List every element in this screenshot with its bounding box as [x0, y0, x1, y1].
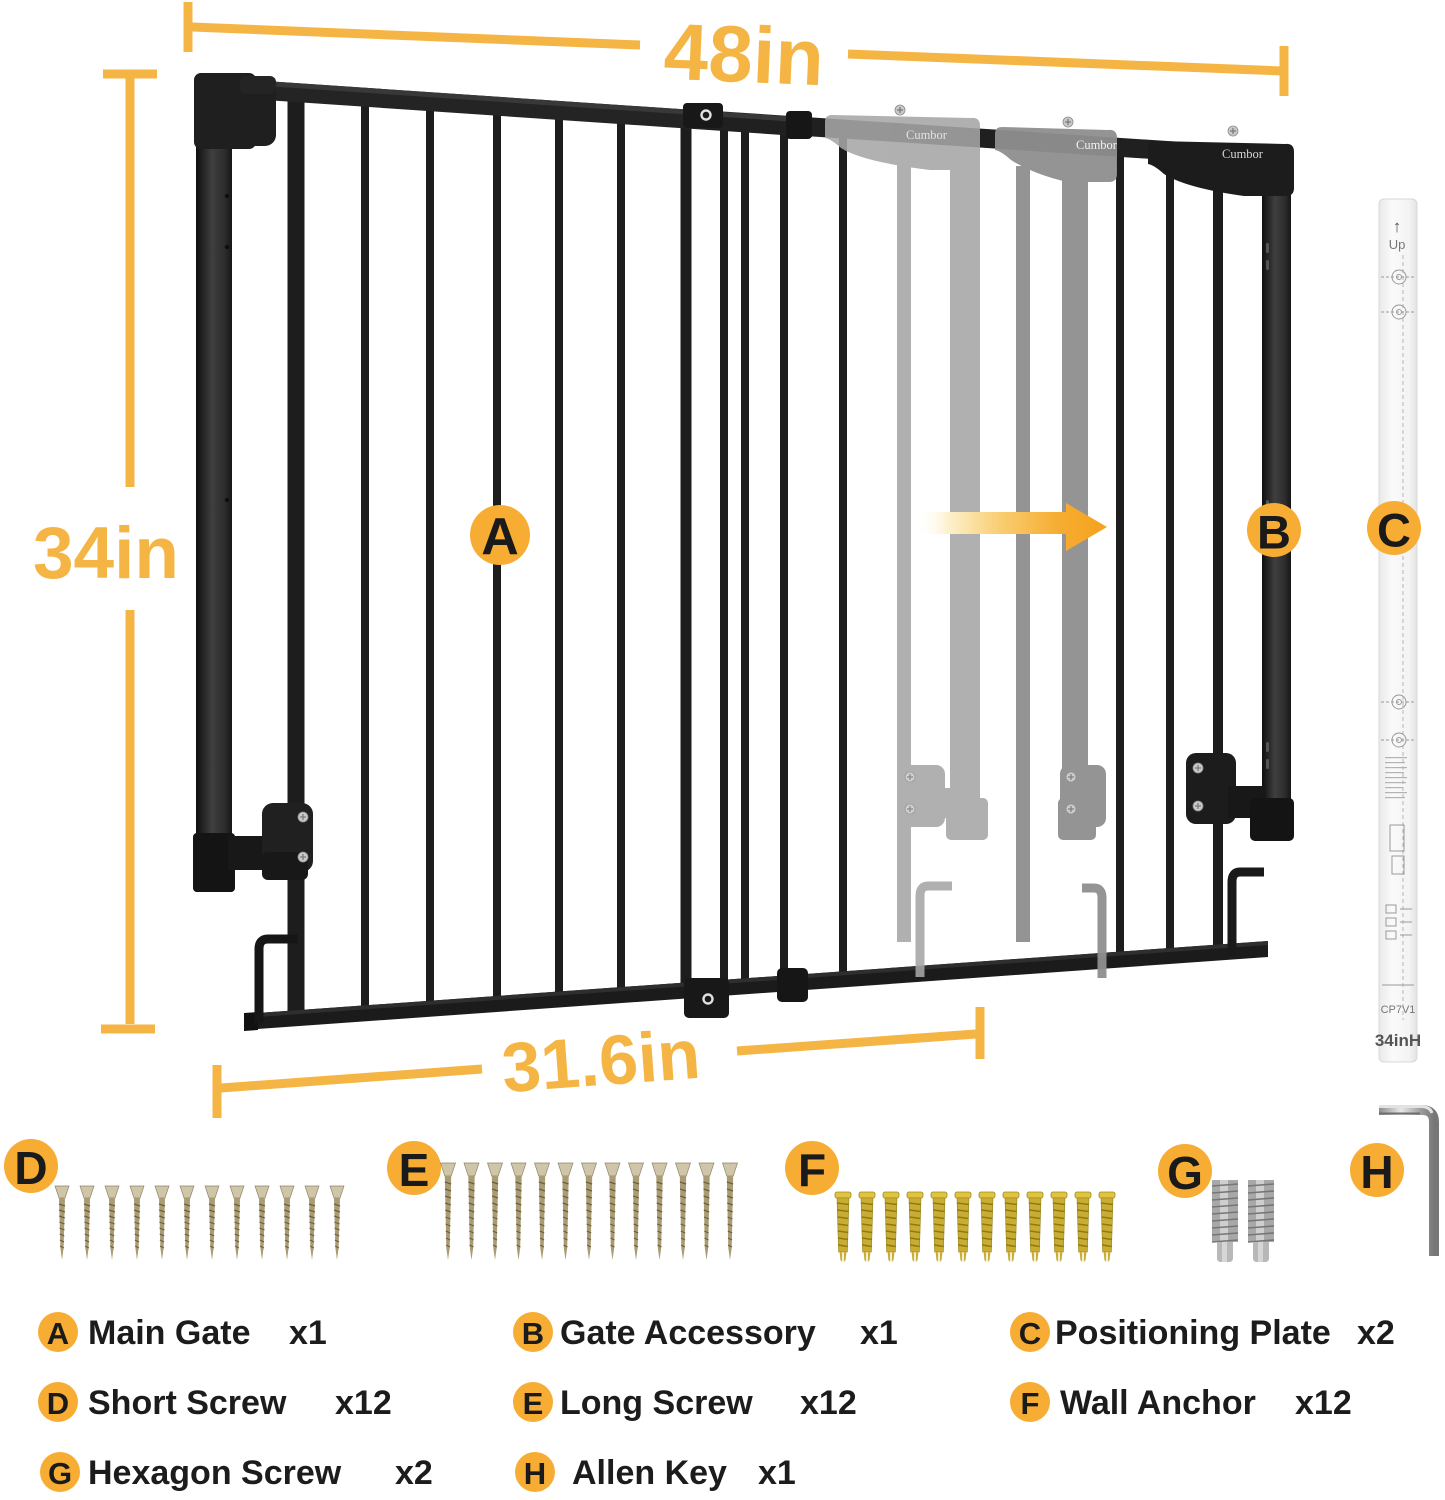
- svg-text:Cumbor: Cumbor: [1076, 138, 1118, 152]
- svg-text:G: G: [1167, 1147, 1203, 1199]
- svg-text:31.6in: 31.6in: [499, 1015, 703, 1107]
- svg-text:x12: x12: [335, 1384, 392, 1422]
- svg-text:G: G: [48, 1456, 72, 1491]
- svg-text:F: F: [1021, 1386, 1040, 1421]
- svg-text:x1: x1: [860, 1314, 898, 1352]
- svg-text:A: A: [481, 508, 519, 566]
- svg-text:E: E: [523, 1386, 544, 1421]
- svg-text:Short Screw: Short Screw: [88, 1384, 287, 1422]
- svg-text:x2: x2: [1357, 1314, 1395, 1352]
- svg-text:x12: x12: [1295, 1384, 1352, 1422]
- svg-text:x1: x1: [289, 1314, 327, 1352]
- svg-text:x12: x12: [800, 1384, 857, 1422]
- svg-text:34in: 34in: [33, 513, 179, 594]
- svg-text:C: C: [1019, 1316, 1041, 1351]
- svg-text:48in: 48in: [662, 7, 826, 103]
- svg-text:Cumbor: Cumbor: [906, 128, 948, 142]
- svg-text:E: E: [399, 1144, 430, 1196]
- svg-text:C: C: [1377, 504, 1411, 557]
- svg-text:Long Screw: Long Screw: [560, 1384, 753, 1422]
- svg-text:D: D: [47, 1386, 69, 1421]
- svg-text:Cumbor: Cumbor: [1222, 147, 1264, 161]
- svg-text:Up: Up: [1389, 237, 1406, 252]
- svg-text:Positioning Plate: Positioning Plate: [1055, 1314, 1331, 1352]
- svg-text:Main Gate: Main Gate: [88, 1314, 250, 1352]
- svg-text:A: A: [47, 1316, 69, 1351]
- svg-text:B: B: [522, 1316, 544, 1351]
- svg-text:↑: ↑: [1393, 217, 1402, 236]
- svg-text:Gate Accessory: Gate Accessory: [560, 1314, 816, 1352]
- svg-text:CP7V1: CP7V1: [1381, 1004, 1416, 1016]
- svg-text:H: H: [524, 1456, 546, 1491]
- svg-text:x1: x1: [758, 1454, 796, 1492]
- svg-text:Allen Key: Allen Key: [572, 1454, 727, 1492]
- svg-text:34inH: 34inH: [1375, 1031, 1421, 1050]
- svg-text:Wall Anchor: Wall Anchor: [1060, 1384, 1256, 1422]
- svg-text:B: B: [1257, 506, 1291, 559]
- svg-text:H: H: [1360, 1146, 1393, 1198]
- svg-text:Hexagon Screw: Hexagon Screw: [88, 1454, 342, 1492]
- svg-text:D: D: [14, 1142, 47, 1194]
- svg-text:F: F: [798, 1144, 826, 1196]
- svg-text:x2: x2: [395, 1454, 433, 1492]
